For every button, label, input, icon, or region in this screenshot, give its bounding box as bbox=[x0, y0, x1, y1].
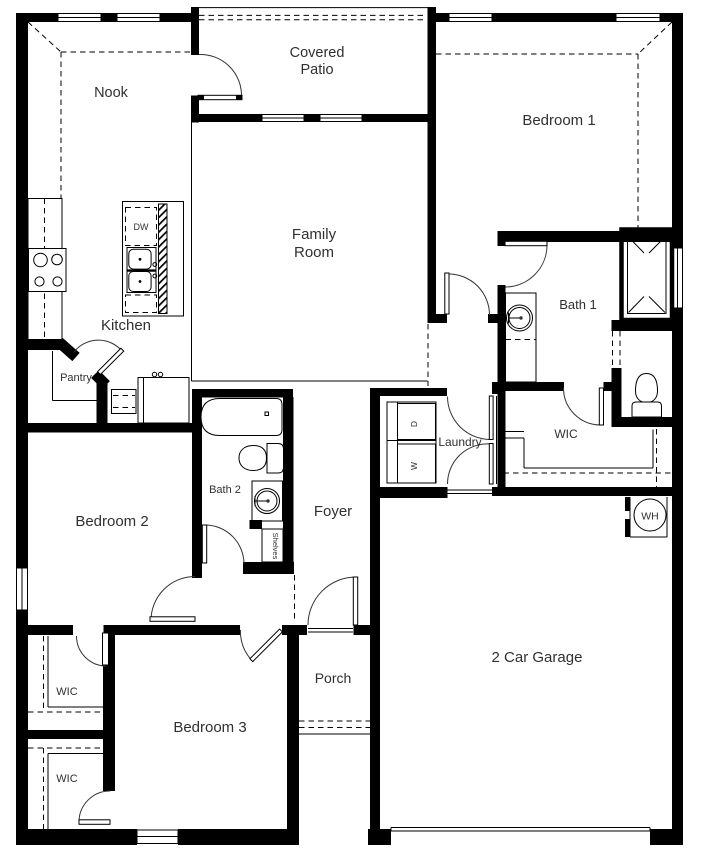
svg-text:Bedroom 1: Bedroom 1 bbox=[522, 112, 595, 129]
svg-text:Bedroom 3: Bedroom 3 bbox=[173, 719, 246, 736]
svg-text:Nook: Nook bbox=[94, 85, 129, 101]
svg-text:Patio: Patio bbox=[300, 62, 333, 78]
svg-text:Shelves: Shelves bbox=[271, 533, 280, 560]
svg-text:2 Car Garage: 2 Car Garage bbox=[492, 649, 583, 666]
svg-text:WIC: WIC bbox=[56, 686, 77, 698]
svg-text:W: W bbox=[409, 462, 419, 470]
svg-text:DW: DW bbox=[134, 222, 149, 232]
svg-text:Laundry: Laundry bbox=[438, 435, 481, 449]
svg-text:WIC: WIC bbox=[554, 427, 578, 441]
svg-text:WIC: WIC bbox=[56, 773, 77, 785]
svg-text:Foyer: Foyer bbox=[314, 503, 352, 520]
svg-text:D: D bbox=[409, 421, 419, 427]
svg-text:Bath 2: Bath 2 bbox=[209, 484, 241, 496]
svg-text:Pantry: Pantry bbox=[60, 372, 92, 384]
svg-text:Family: Family bbox=[292, 226, 337, 243]
svg-text:Porch: Porch bbox=[315, 670, 352, 686]
svg-text:Room: Room bbox=[294, 244, 334, 261]
svg-text:WH: WH bbox=[641, 511, 659, 523]
svg-text:Bath 1: Bath 1 bbox=[559, 297, 597, 312]
svg-text:Kitchen: Kitchen bbox=[101, 317, 151, 334]
svg-text:Bedroom 2: Bedroom 2 bbox=[75, 513, 148, 530]
svg-text:Covered: Covered bbox=[290, 45, 345, 61]
